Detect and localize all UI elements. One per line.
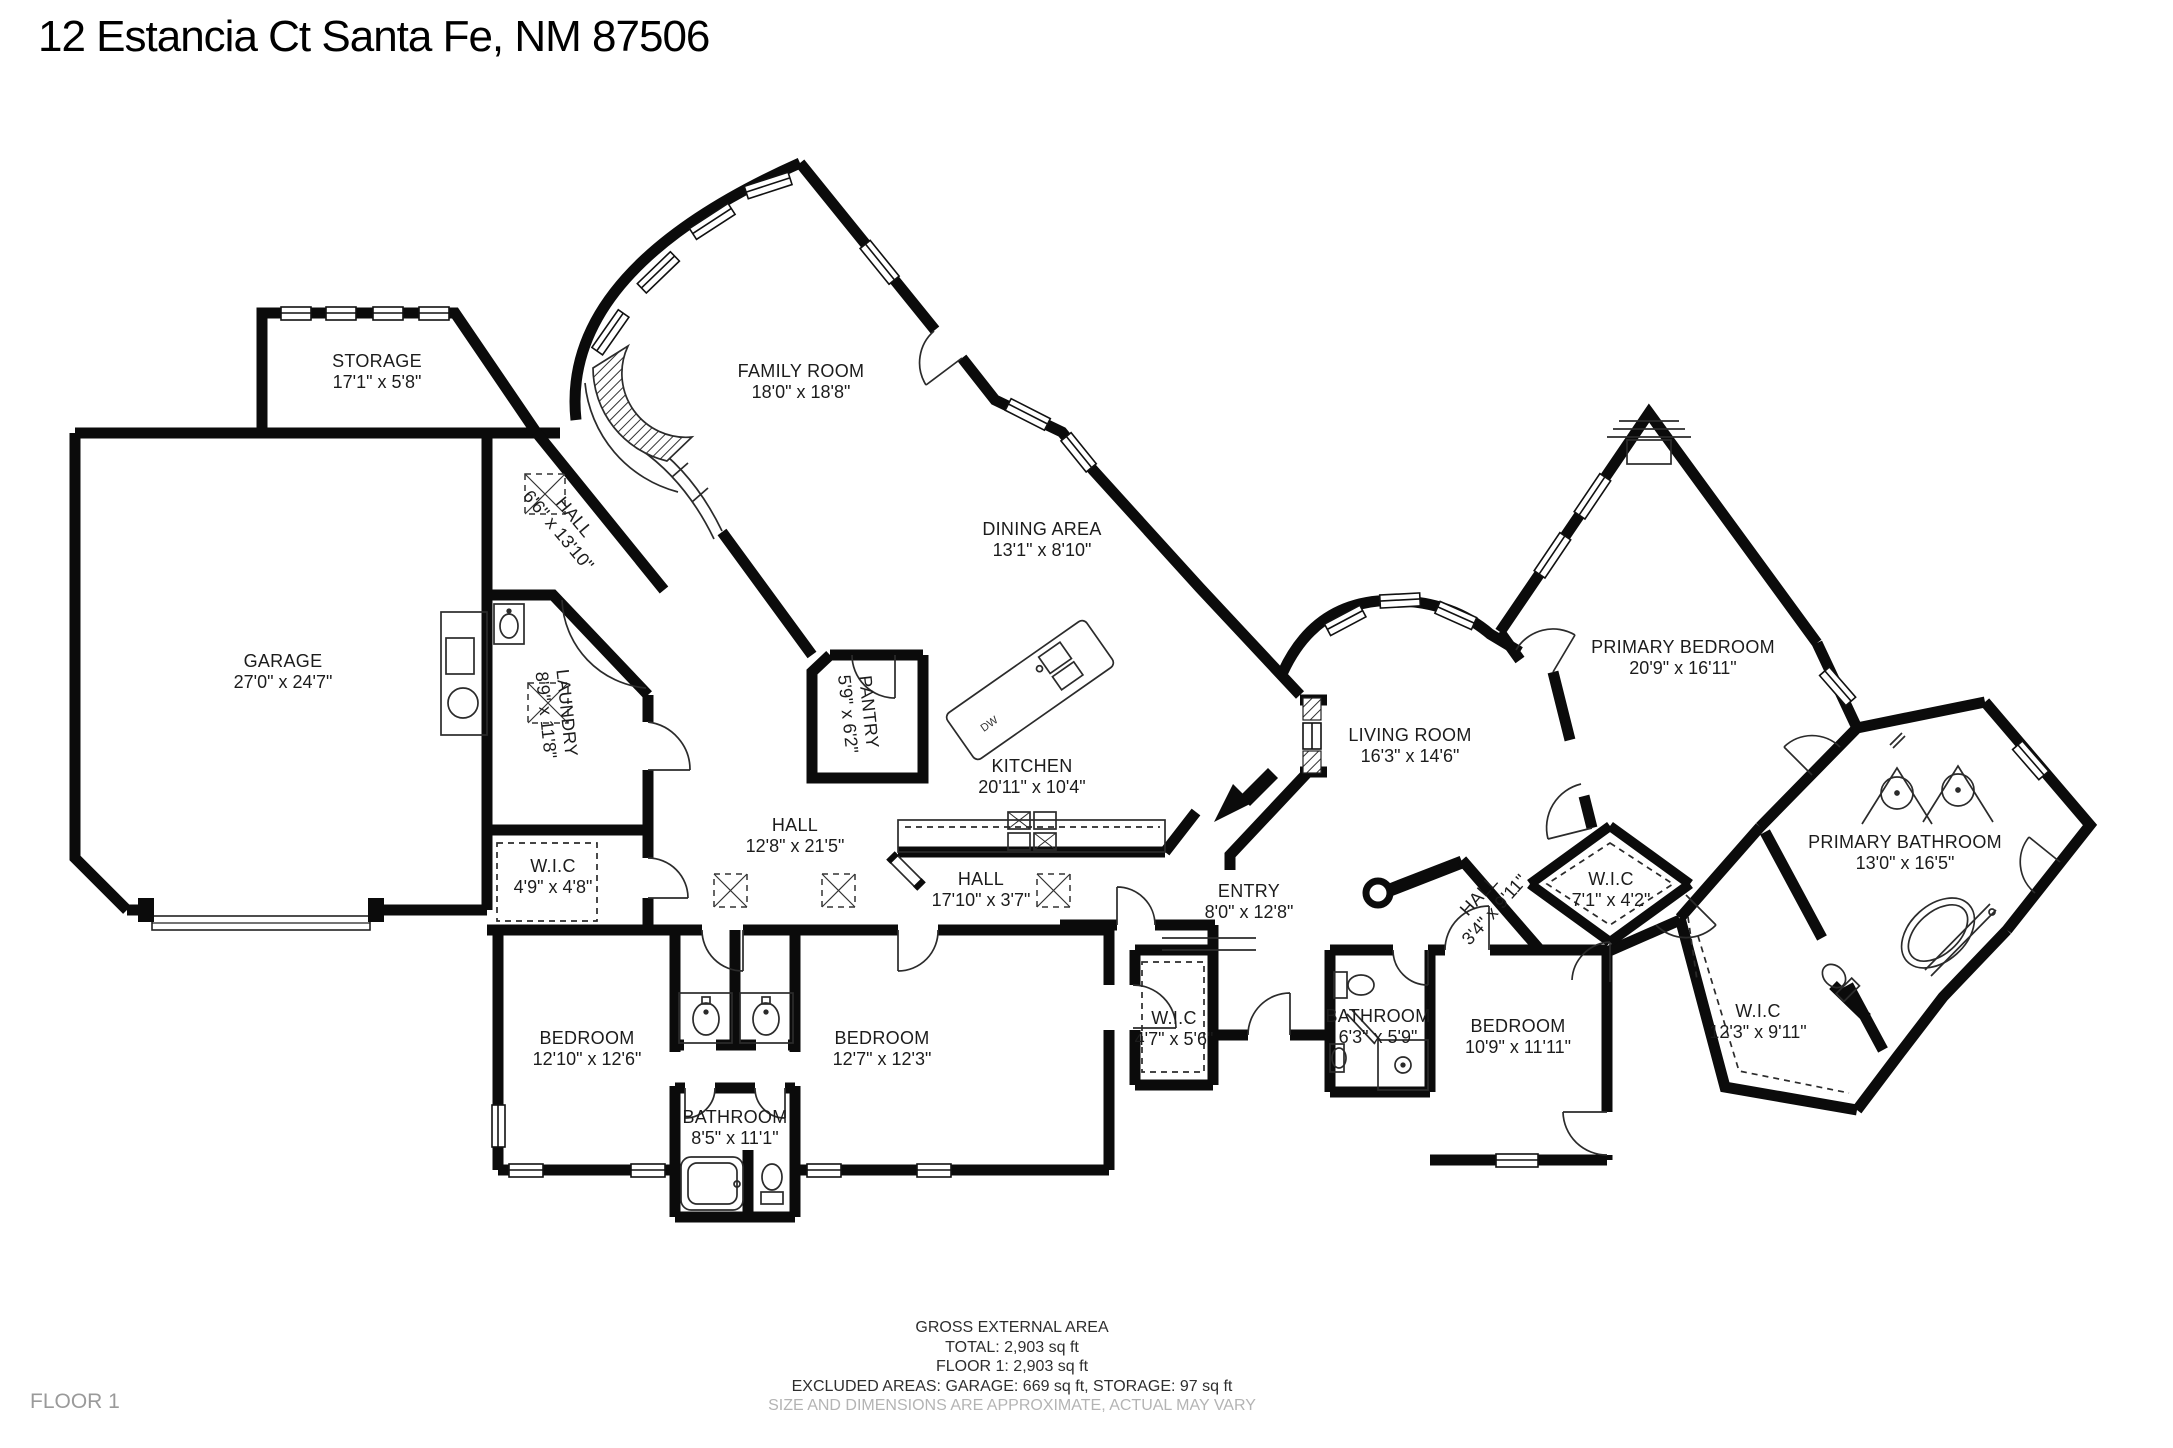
room-label-living-room: LIVING ROOM16'3" x 14'6" [1348, 725, 1471, 767]
room-label-wic-71: W.I.C7'1" x 4'2" [1572, 869, 1651, 911]
room-name: KITCHEN [978, 756, 1085, 777]
room-name: FAMILY ROOM [738, 361, 865, 382]
disclaimer: SIZE AND DIMENSIONS ARE APPROXIMATE, ACT… [512, 1396, 1512, 1416]
room-name: BATHROOM [1325, 1006, 1430, 1027]
room-labels: STORAGE17'1" x 5'8"FAMILY ROOM18'0" x 18… [0, 0, 2173, 1448]
room-name: GARAGE [234, 651, 333, 672]
room-dimensions: 27'0" x 24'7" [234, 672, 333, 693]
floor1-area: FLOOR 1: 2,903 sq ft [512, 1357, 1512, 1377]
excluded-areas: EXCLUDED AREAS: GARAGE: 669 sq ft, STORA… [512, 1377, 1512, 1397]
room-dimensions: 17'1" x 5'8" [332, 372, 422, 393]
room-dimensions: 20'9" x 16'11" [1591, 658, 1775, 679]
room-label-bathroom-east: BATHROOM6'3" x 5'9" [1325, 1006, 1430, 1048]
room-name: HALL [746, 815, 845, 836]
room-dimensions: 20'11" x 10'4" [978, 777, 1085, 798]
room-dimensions: 16'3" x 14'6" [1348, 746, 1471, 767]
room-name: BATHROOM [682, 1107, 787, 1128]
room-dimensions: 7'1" x 4'2" [1572, 890, 1651, 911]
room-dimensions: 13'1" x 8'10" [982, 540, 1101, 561]
room-label-primary-bathroom: PRIMARY BATHROOM13'0" x 16'5" [1808, 832, 2002, 874]
room-label-bedroom-2: BEDROOM12'7" x 12'3" [833, 1028, 932, 1070]
room-label-bedroom-1: BEDROOM12'10" x 12'6" [533, 1028, 642, 1070]
room-name: W.I.C [1572, 869, 1651, 890]
room-label-family-room: FAMILY ROOM18'0" x 18'8" [738, 361, 865, 403]
room-dimensions: 8'5" x 11'1" [682, 1128, 787, 1149]
floor-plan-page: DW [0, 0, 2173, 1448]
room-label-kitchen: KITCHEN20'11" x 10'4" [978, 756, 1085, 798]
room-dimensions: 18'0" x 18'8" [738, 382, 865, 403]
room-name: STORAGE [332, 351, 422, 372]
room-label-entry: ENTRY8'0" x 12'8" [1205, 881, 1294, 923]
room-label-dining-area: DINING AREA13'1" x 8'10" [982, 519, 1101, 561]
total-area: TOTAL: 2,903 sq ft [512, 1338, 1512, 1358]
room-label-garage: GARAGE27'0" x 24'7" [234, 651, 333, 693]
room-dimensions: 8'0" x 12'8" [1205, 902, 1294, 923]
room-dimensions: 6'3" x 5'9" [1325, 1027, 1430, 1048]
room-name: BEDROOM [833, 1028, 932, 1049]
room-name: HALL [932, 869, 1031, 890]
room-label-primary-bedroom: PRIMARY BEDROOM20'9" x 16'11" [1591, 637, 1775, 679]
room-label-hall-east: HALL3'4" x 9'11" [1442, 856, 1532, 949]
room-label-bedroom-3: BEDROOM10'9" x 11'11" [1465, 1016, 1571, 1058]
gross-area-heading: GROSS EXTERNAL AREA [512, 1318, 1512, 1338]
room-dimensions: 4'9" x 4'8" [514, 877, 593, 898]
room-label-wic-47: W.I.C4'7" x 5'6" [1135, 1008, 1214, 1050]
room-label-laundry: LAUNDRY8'9" x 11'8" [531, 668, 582, 760]
room-label-wic-49: W.I.C4'9" x 4'8" [514, 856, 593, 898]
room-label-bathroom-center: BATHROOM8'5" x 11'1" [682, 1107, 787, 1149]
room-dimensions: 12'8" x 21'5" [746, 836, 845, 857]
room-name: LIVING ROOM [1348, 725, 1471, 746]
floor-label: FLOOR 1 [30, 1390, 120, 1414]
room-name: BEDROOM [1465, 1016, 1571, 1037]
room-dimensions: 13'0" x 16'5" [1808, 853, 2002, 874]
footer-summary: GROSS EXTERNAL AREA TOTAL: 2,903 sq ft F… [512, 1318, 1512, 1416]
room-label-pantry: PANTRY5'9" x 6'2" [833, 672, 883, 755]
room-name: BEDROOM [533, 1028, 642, 1049]
room-name: ENTRY [1205, 881, 1294, 902]
room-label-storage: STORAGE17'1" x 5'8" [332, 351, 422, 393]
room-dimensions: 4'7" x 5'6" [1135, 1029, 1214, 1050]
room-name: W.I.C [1709, 1001, 1806, 1022]
room-name: DINING AREA [982, 519, 1101, 540]
room-label-hall-center: HALL12'8" x 21'5" [746, 815, 845, 857]
room-name: W.I.C [514, 856, 593, 877]
room-dimensions: 12'7" x 12'3" [833, 1049, 932, 1070]
room-label-hall-upper: HALL6'6" x 13'10" [518, 473, 614, 576]
room-name: PRIMARY BATHROOM [1808, 832, 2002, 853]
room-label-hall-south: HALL17'10" x 3'7" [932, 869, 1031, 911]
room-label-wic-123: W.I.C12'3" x 9'11" [1709, 1001, 1806, 1043]
room-dimensions: 12'3" x 9'11" [1709, 1022, 1806, 1043]
room-name: PRIMARY BEDROOM [1591, 637, 1775, 658]
room-name: W.I.C [1135, 1008, 1214, 1029]
room-dimensions: 12'10" x 12'6" [533, 1049, 642, 1070]
room-dimensions: 10'9" x 11'11" [1465, 1037, 1571, 1058]
room-dimensions: 17'10" x 3'7" [932, 890, 1031, 911]
